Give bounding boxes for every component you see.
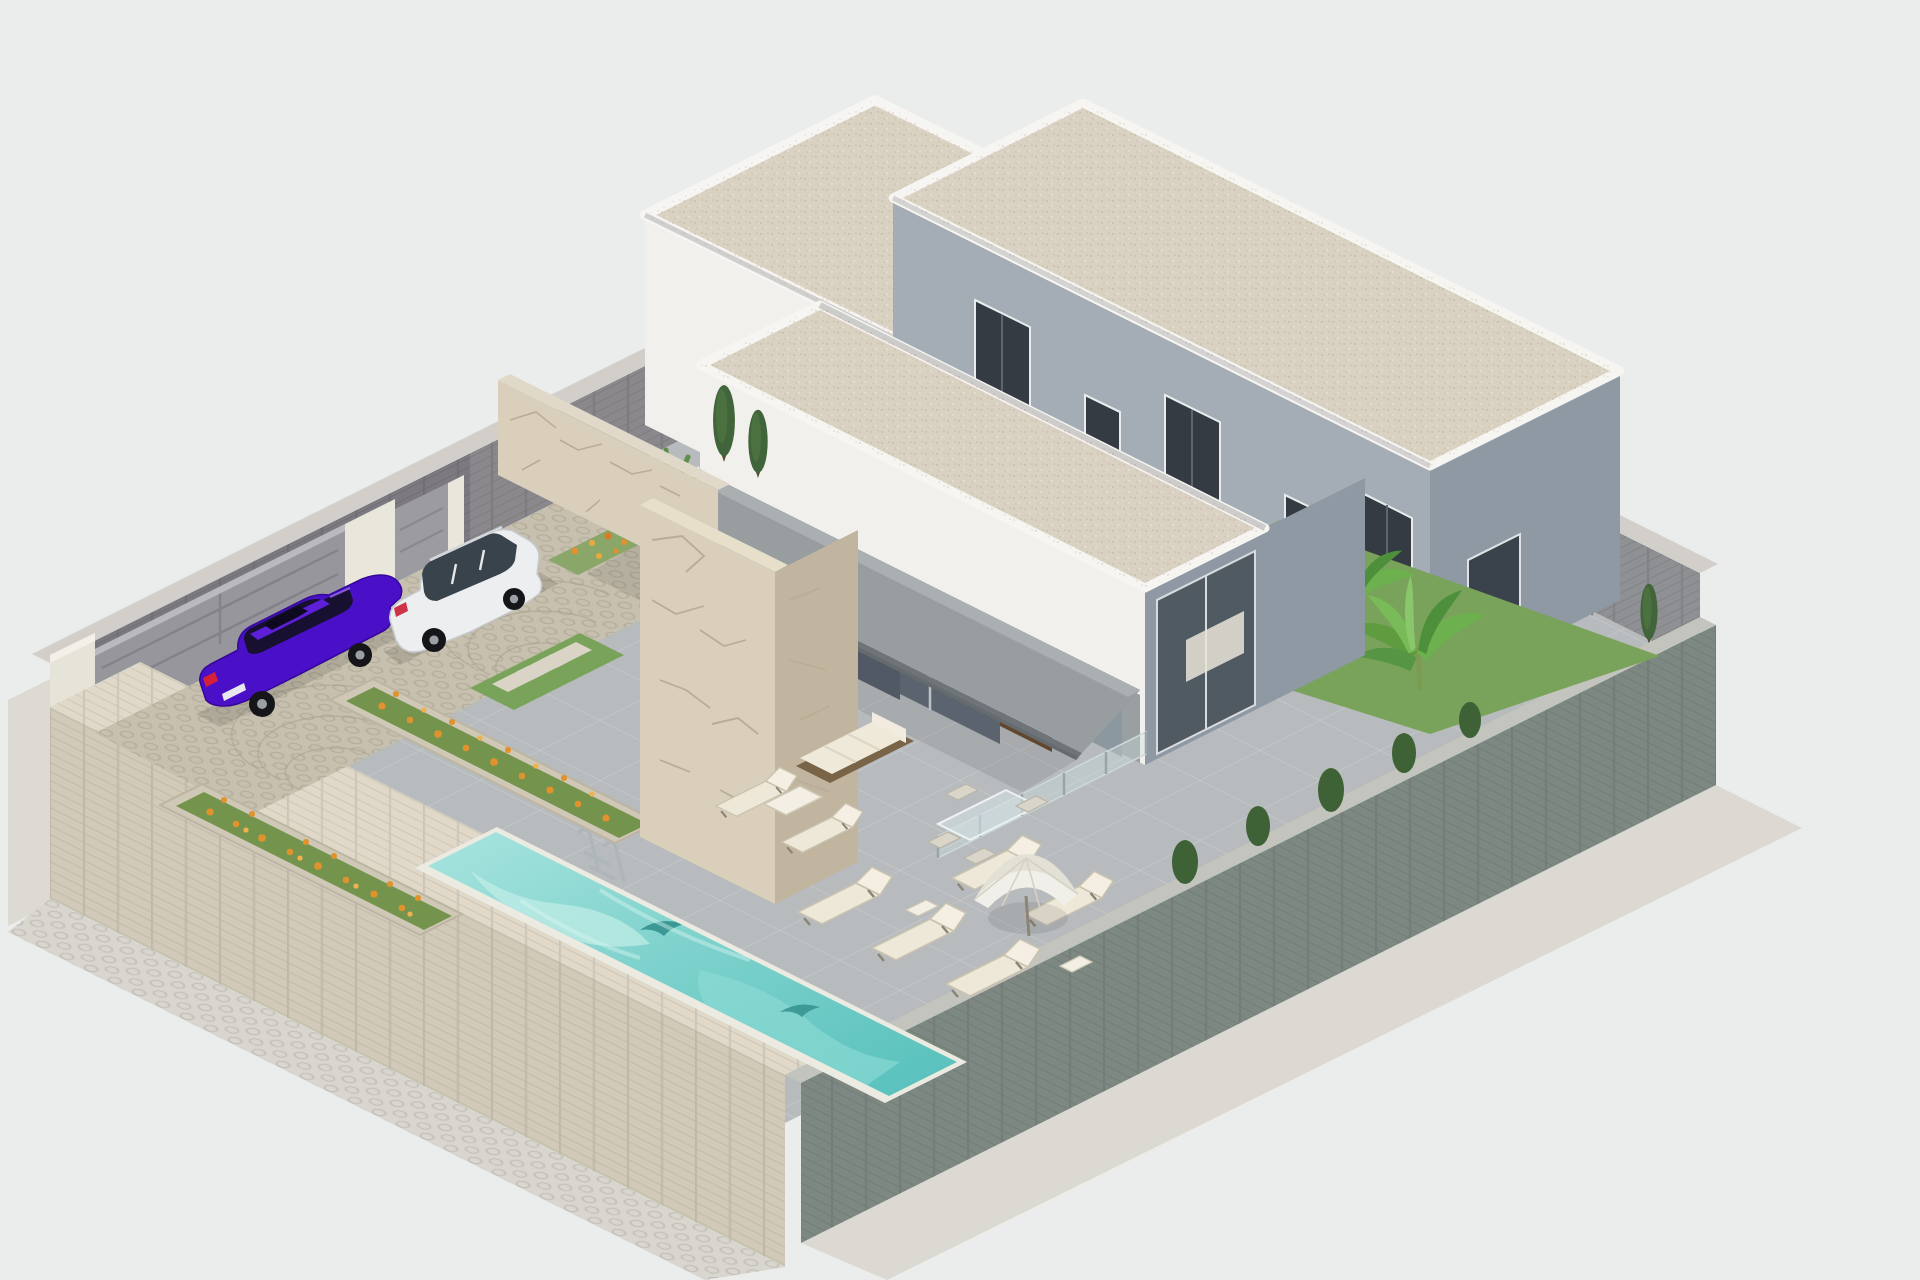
villa-isometric-render (0, 0, 1920, 1280)
stone-pillar (640, 498, 858, 904)
villa-render-stage (0, 0, 1920, 1280)
